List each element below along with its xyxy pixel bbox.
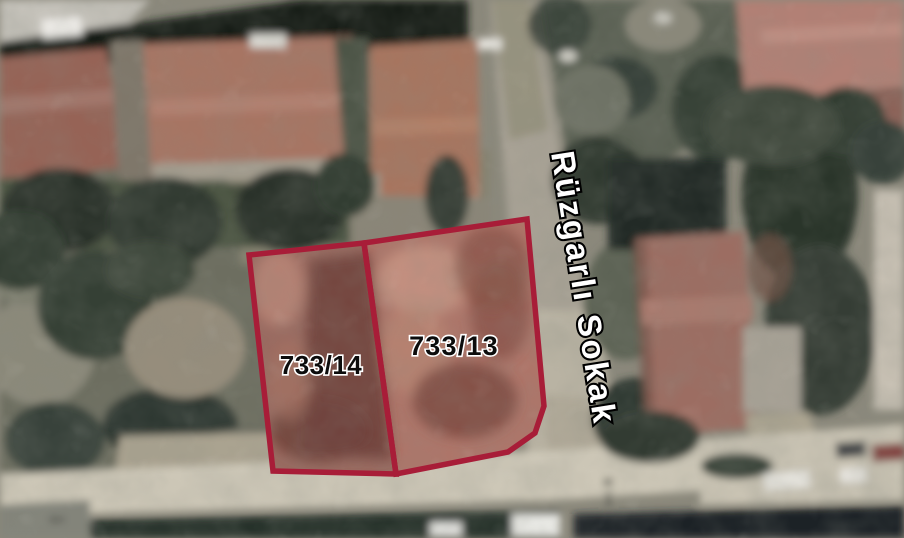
svg-text:733/13: 733/13 — [409, 331, 499, 361]
svg-text:733/14: 733/14 — [280, 350, 363, 380]
